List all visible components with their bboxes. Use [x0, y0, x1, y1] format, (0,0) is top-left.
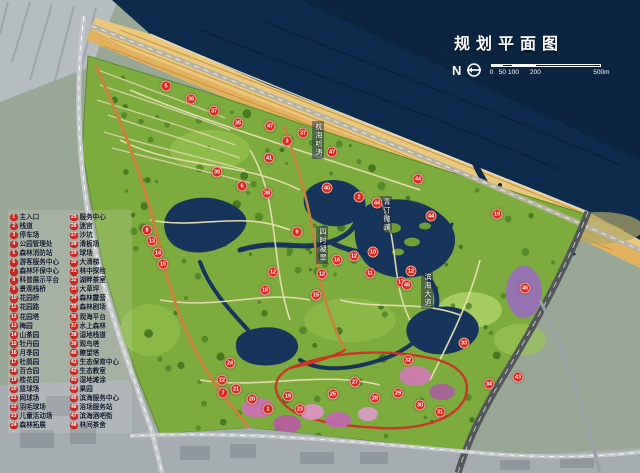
legend-number-badge: 21: [10, 395, 18, 403]
legend-item: 29球场: [70, 249, 126, 258]
legend-number-badge: 6: [10, 259, 18, 267]
map-number-marker: 32: [403, 355, 414, 366]
legend-label: 停车场: [20, 231, 40, 240]
map-number-marker: 12: [406, 266, 417, 277]
legend-label: 公园管理处: [20, 240, 53, 249]
legend-number-badge: 19: [10, 377, 18, 385]
legend-number-badge: 40: [70, 349, 78, 357]
map-number-marker: 40: [322, 183, 333, 194]
legend-item: 44果园: [70, 385, 126, 394]
legend-item: 12花园塔: [10, 313, 66, 322]
legend-label: 羽毛球场: [20, 403, 46, 412]
legend-label: 浴场服务站: [80, 403, 113, 412]
legend-item: 23儿童活动场: [10, 412, 66, 421]
legend-item: 46浴场服务站: [70, 403, 126, 412]
legend-number-badge: 17: [10, 359, 18, 367]
legend-number-badge: 4: [10, 241, 18, 249]
map-number-marker: 10: [368, 247, 379, 258]
legend-item: 15牡丹园: [10, 340, 66, 349]
map-number-marker: 41: [264, 153, 275, 164]
map-number-marker: 22: [217, 375, 228, 386]
map-number-marker: 12: [268, 267, 279, 278]
legend-number-badge: 8: [10, 277, 18, 285]
legend-item: 41生态保育中心: [70, 358, 126, 367]
legend-item: 9景观栈桥: [10, 285, 66, 294]
legend-number-badge: 2: [10, 223, 18, 231]
legend-number-badge: 41: [70, 359, 78, 367]
scale-tick-label: 200: [530, 69, 541, 76]
legend-label: 花园塔: [20, 313, 40, 322]
north-arrow-icon: [466, 62, 482, 78]
map-number-marker: 31: [435, 407, 446, 418]
map-number-marker: 7: [218, 388, 229, 399]
legend-item: 19桂花园: [10, 376, 66, 385]
map-number-marker: 5: [161, 81, 172, 92]
legend-number-badge: 7: [10, 268, 18, 276]
legend-item: 2栈道: [10, 222, 66, 231]
scenic-area-label: 四时凝翠: [316, 226, 328, 264]
scale-tick-label: 100: [508, 69, 519, 76]
map-number-marker: 43: [513, 372, 524, 383]
page-title: 规划平面图: [454, 30, 632, 54]
map-number-marker: 18: [260, 285, 271, 296]
legend-number-badge: 36: [70, 313, 78, 321]
legend-number-badge: 25: [70, 214, 78, 222]
legend-label: 湿地栈道: [80, 331, 106, 340]
legend-number-badge: 20: [10, 386, 18, 394]
map-number-marker: 25: [328, 389, 339, 400]
map-number-marker: 38: [262, 188, 273, 199]
legend-item: 7森林环保中心: [10, 267, 66, 276]
legend-label: 森林消防站: [20, 249, 53, 258]
legend-label: 花园桥: [20, 294, 40, 303]
map-number-marker: 34: [484, 379, 495, 390]
legend-label: 儿童活动场: [20, 412, 53, 421]
legend-item: 36观海平台: [70, 313, 126, 322]
map-number-marker: 15: [158, 259, 169, 270]
legend-number-badge: 39: [70, 340, 78, 348]
map-number-marker: 15: [311, 290, 322, 301]
map-number-marker: 44: [372, 198, 383, 209]
legend-number-badge: 48: [70, 422, 78, 430]
legend-item: 39观鸟塔: [70, 340, 126, 349]
legend-number-badge: 13: [10, 322, 18, 330]
title-block: 规划平面图 N 050100200500m: [452, 30, 632, 78]
legend-item: 33大草坪: [70, 285, 126, 294]
legend-label: 滑板场: [80, 240, 100, 249]
scale-end-label: 500m: [593, 69, 609, 76]
map-number-marker: 12: [349, 251, 360, 262]
legend-item: 4公园管理处: [10, 240, 66, 249]
legend-item: 5森林消防站: [10, 249, 66, 258]
legend-item: 18百合园: [10, 367, 66, 376]
legend-label: 景观栈桥: [20, 285, 46, 294]
legend-item: 43湿地滩涂: [70, 376, 126, 385]
legend-label: 山茶园: [20, 331, 40, 340]
map-number-marker: 36: [186, 94, 197, 105]
legend-label: 水上森林: [80, 322, 106, 331]
legend-number-badge: 14: [10, 331, 18, 339]
legend-number-badge: 26: [70, 223, 78, 231]
map-number-marker: 13: [147, 236, 158, 247]
legend-label: 森林拓展: [20, 421, 46, 430]
map-number-marker: 2: [354, 192, 365, 203]
legend-label: 湿地滩涂: [80, 376, 106, 385]
legend-label: 栈道: [20, 222, 33, 231]
map-number-marker: 19: [492, 209, 503, 220]
legend-label: 篮球场: [20, 385, 40, 394]
legend-label: 月季园: [20, 349, 40, 358]
legend-number-badge: 1: [10, 214, 18, 222]
scale-labels: 050100200500m: [491, 68, 611, 77]
map-number-marker: 44: [426, 211, 437, 222]
legend-number-badge: 31: [70, 268, 78, 276]
legend-item: 34森林露营: [70, 294, 126, 303]
legend-label: 果园: [80, 385, 93, 394]
map-number-marker: 19: [283, 391, 294, 402]
legend-item: 48林间茶舍: [70, 421, 126, 430]
legend-item: 22羽毛球场: [10, 403, 66, 412]
map-number-marker: 8: [142, 225, 153, 236]
legend-label: 百合园: [20, 367, 40, 376]
legend-number-badge: 35: [70, 304, 78, 312]
legend-label: 生态保育中心: [80, 358, 120, 367]
legend-number-badge: 23: [10, 413, 18, 421]
legend-item: 42生态教室: [70, 367, 126, 376]
legend-item: 21网球场: [10, 394, 66, 403]
map-number-marker: 20: [247, 394, 258, 405]
legend-item: 45滨海服务中心: [70, 394, 126, 403]
legend-label: 游客服务中心: [20, 258, 60, 267]
legend-label: 瞭望塔: [80, 349, 100, 358]
legend-item: 14山茶园: [10, 331, 66, 340]
legend-item: 37水上森林: [70, 322, 126, 331]
legend-item: 3停车场: [10, 231, 66, 240]
map-number-marker: 46: [520, 283, 531, 294]
legend-number-badge: 37: [70, 322, 78, 330]
legend-number-badge: 30: [70, 259, 78, 267]
legend-label: 滨海服务中心: [80, 394, 120, 403]
legend-label: 桂花园: [20, 376, 40, 385]
legend-label: 沙坑: [80, 231, 93, 240]
legend-item: 8科普展示平台: [10, 276, 66, 285]
legend-label: 湖畔茶室: [80, 276, 106, 285]
legend-item: 11花园路: [10, 303, 66, 312]
legend-item: 38湿地栈道: [70, 331, 126, 340]
map-number-marker: 37: [209, 106, 220, 117]
map-number-marker: 6: [237, 181, 248, 192]
legend-number-badge: 9: [10, 286, 18, 294]
legend-label: 林中探险: [80, 267, 106, 276]
legend-number-badge: 45: [70, 395, 78, 403]
legend-label: 大滑梯: [80, 258, 100, 267]
map-number-marker: 16: [332, 255, 343, 266]
legend-label: 主入口: [20, 213, 40, 222]
legend-item: 17杜鹃园: [10, 358, 66, 367]
map-number-marker: 33: [459, 338, 470, 349]
map-number-marker: 27: [350, 377, 361, 388]
legend-item: 16月季园: [10, 349, 66, 358]
map-number-marker: 29: [393, 388, 404, 399]
legend-number-badge: 38: [70, 331, 78, 339]
legend-item: 32湖畔茶室: [70, 276, 126, 285]
legend-item: 13梅园: [10, 322, 66, 331]
legend-item: 35森林剧场: [70, 303, 126, 312]
legend-number-badge: 42: [70, 368, 78, 376]
legend-number-badge: 15: [10, 340, 18, 348]
legend-number-badge: 24: [10, 422, 18, 430]
legend-number-badge: 3: [10, 232, 18, 240]
legend-label: 观鸟塔: [80, 340, 100, 349]
map-number-marker: 1: [263, 404, 274, 415]
legend-label: 梅园: [20, 322, 33, 331]
legend-item: 40瞭望塔: [70, 349, 126, 358]
legend-column-1: 1主入口2栈道3停车场4公园管理处5森林消防站6游客服务中心7森林环保中心8科普…: [10, 213, 66, 430]
legend-item: 20篮球场: [10, 385, 66, 394]
legend-label: 森林剧场: [80, 303, 106, 312]
map-number-marker: 28: [370, 393, 381, 404]
legend-label: 科普展示平台: [20, 276, 60, 285]
legend-label: 花园路: [20, 303, 40, 312]
legend-item: 47滨海酒吧街: [70, 412, 126, 421]
legend-item: 27沙坑: [70, 231, 126, 240]
legend-item: 28滑板场: [70, 240, 126, 249]
legend-number-badge: 28: [70, 241, 78, 249]
scale-tick-label: 50: [499, 69, 506, 76]
legend-panel: 1主入口2栈道3停车场4公园管理处5森林消防站6游客服务中心7森林环保中心8科普…: [8, 210, 132, 433]
scenic-area-label: 滨海大道: [421, 271, 433, 309]
legend-label: 森林露营: [80, 294, 106, 303]
map-number-marker: 21: [231, 384, 242, 395]
legend-label: 球场: [80, 249, 93, 258]
legend-number-badge: 33: [70, 286, 78, 294]
legend-label: 网球场: [20, 394, 40, 403]
legend-item: 6游客服务中心: [10, 258, 66, 267]
legend-number-badge: 18: [10, 368, 18, 376]
map-number-marker: 47: [265, 121, 276, 132]
map-number-marker: 44: [413, 174, 424, 185]
legend-item: 30大滑梯: [70, 258, 126, 267]
map-number-marker: 45: [402, 280, 413, 291]
legend-number-badge: 29: [70, 250, 78, 258]
legend-number-badge: 46: [70, 404, 78, 412]
map-number-marker: 35: [233, 118, 244, 129]
legend-label: 森林环保中心: [20, 267, 60, 276]
scale-bar: 050100200500m: [491, 64, 611, 77]
legend-number-badge: 43: [70, 377, 78, 385]
legend-label: 杜鹃园: [20, 358, 40, 367]
legend-item: 31林中探险: [70, 267, 126, 276]
legend-number-badge: 10: [10, 295, 18, 303]
legend-label: 牡丹园: [20, 340, 40, 349]
north-label: N: [452, 63, 461, 78]
map-number-marker: 39: [212, 167, 223, 178]
legend-number-badge: 16: [10, 349, 18, 357]
legend-number-badge: 32: [70, 277, 78, 285]
scale-tick-label: 0: [490, 69, 494, 76]
map-number-marker: 9: [292, 227, 303, 238]
legend-label: 生态教室: [80, 367, 106, 376]
legend-item: 1主入口: [10, 213, 66, 222]
legend-number-badge: 22: [10, 404, 18, 412]
map-number-marker: 30: [415, 400, 426, 411]
legend-column-2: 25服务中心26迷宫27沙坑28滑板场29球场30大滑梯31林中探险32湖畔茶室…: [70, 213, 126, 430]
legend-label: 滨海酒吧街: [80, 412, 113, 421]
map-number-marker: 24: [225, 358, 236, 369]
legend-item: 10花园桥: [10, 294, 66, 303]
legend-label: 迷宫: [80, 222, 93, 231]
scenic-area-label: 枕海听涛: [312, 121, 324, 159]
legend-number-badge: 11: [10, 304, 18, 312]
legend-label: 大草坪: [80, 285, 100, 294]
legend-number-badge: 12: [10, 313, 18, 321]
legend-label: 观海平台: [80, 313, 106, 322]
map-number-marker: 3: [282, 136, 293, 147]
legend-number-badge: 34: [70, 295, 78, 303]
legend-number-badge: 44: [70, 386, 78, 394]
map-number-marker: 37: [298, 128, 309, 139]
map-number-marker: 23: [295, 404, 306, 415]
legend-label: 服务中心: [80, 213, 106, 222]
map-number-marker: 11: [365, 268, 376, 279]
legend-item: 24森林拓展: [10, 421, 66, 430]
map-number-marker: 47: [327, 147, 338, 158]
legend-item: 25服务中心: [70, 213, 126, 222]
legend-number-badge: 47: [70, 413, 78, 421]
legend-number-badge: 5: [10, 250, 18, 258]
legend-number-badge: 27: [70, 232, 78, 240]
legend-item: 26迷宫: [70, 222, 126, 231]
legend-label: 林间茶舍: [80, 421, 106, 430]
map-number-marker: 14: [153, 248, 164, 259]
map-number-marker: 12: [317, 269, 328, 280]
